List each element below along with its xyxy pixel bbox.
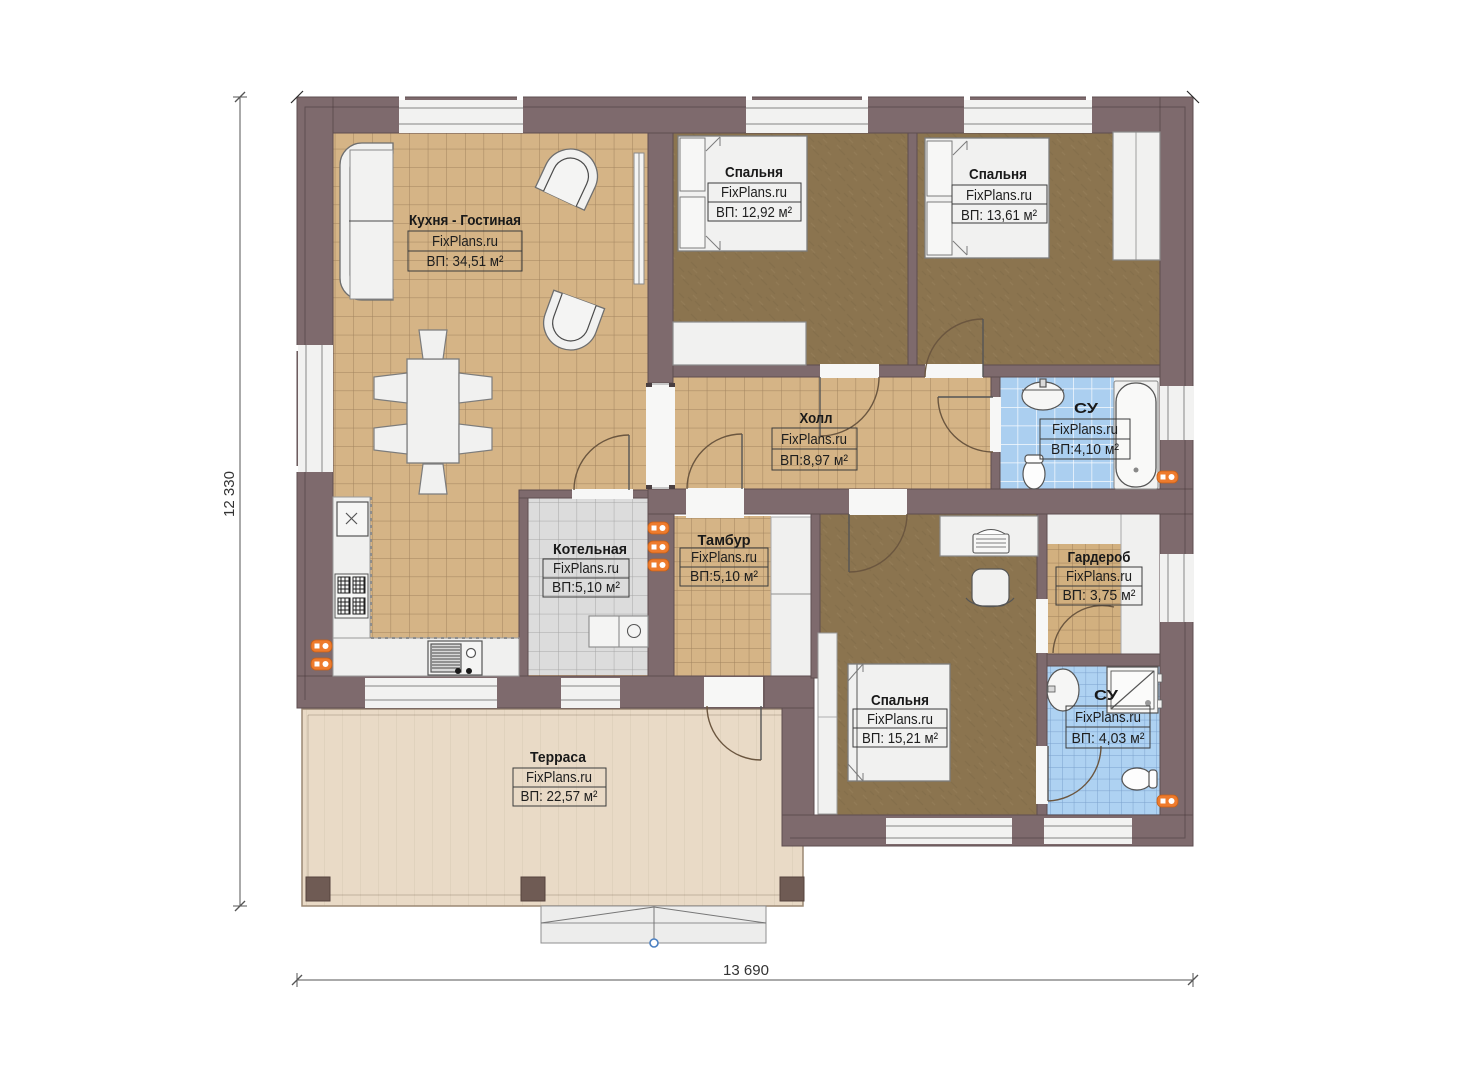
svg-text:Холл: Холл — [800, 410, 833, 427]
svg-text:Кухня - Гостиная: Кухня - Гостиная — [409, 212, 521, 229]
svg-text:FixPlans.ru: FixPlans.ru — [867, 711, 933, 728]
svg-text:СУ: СУ — [1074, 400, 1099, 417]
svg-text:FixPlans.ru: FixPlans.ru — [526, 769, 592, 786]
svg-text:Спальня: Спальня — [725, 164, 783, 181]
svg-text:Котельная: Котельная — [553, 541, 627, 558]
svg-text:FixPlans.ru: FixPlans.ru — [1052, 421, 1118, 438]
svg-text:FixPlans.ru: FixPlans.ru — [691, 549, 757, 566]
svg-text:FixPlans.ru: FixPlans.ru — [1075, 709, 1141, 726]
svg-text:Гардероб: Гардероб — [1068, 549, 1131, 566]
svg-text:Спальня: Спальня — [871, 692, 929, 709]
svg-text:ВП: 4,03 м²: ВП: 4,03 м² — [1072, 730, 1145, 747]
svg-text:FixPlans.ru: FixPlans.ru — [966, 187, 1032, 204]
svg-text:FixPlans.ru: FixPlans.ru — [781, 431, 847, 448]
svg-text:FixPlans.ru: FixPlans.ru — [1066, 568, 1132, 585]
svg-text:ВП: 12,92 м²: ВП: 12,92 м² — [716, 204, 792, 221]
svg-text:ВП:5,10 м²: ВП:5,10 м² — [690, 568, 758, 585]
svg-text:ВП:8,97 м²: ВП:8,97 м² — [780, 452, 848, 469]
svg-text:Тамбур: Тамбур — [698, 532, 751, 549]
svg-text:ВП: 3,75 м²: ВП: 3,75 м² — [1063, 587, 1136, 604]
svg-text:Спальня: Спальня — [969, 166, 1027, 183]
svg-text:ВП: 15,21 м²: ВП: 15,21 м² — [862, 730, 938, 747]
svg-text:ВП:4,10 м²: ВП:4,10 м² — [1051, 441, 1119, 458]
svg-text:СУ: СУ — [1094, 687, 1119, 704]
svg-text:ВП:5,10 м²: ВП:5,10 м² — [552, 579, 620, 596]
svg-text:ВП: 13,61 м²: ВП: 13,61 м² — [961, 207, 1037, 224]
svg-text:ВП: 22,57 м²: ВП: 22,57 м² — [521, 788, 598, 805]
svg-text:FixPlans.ru: FixPlans.ru — [432, 233, 498, 250]
svg-text:ВП: 34,51 м²: ВП: 34,51 м² — [427, 253, 504, 270]
svg-text:12 330: 12 330 — [221, 471, 238, 517]
svg-text:13 690: 13 690 — [723, 962, 769, 979]
svg-text:FixPlans.ru: FixPlans.ru — [721, 184, 787, 201]
svg-text:Терраса: Терраса — [530, 749, 587, 766]
svg-text:FixPlans.ru: FixPlans.ru — [553, 560, 619, 577]
